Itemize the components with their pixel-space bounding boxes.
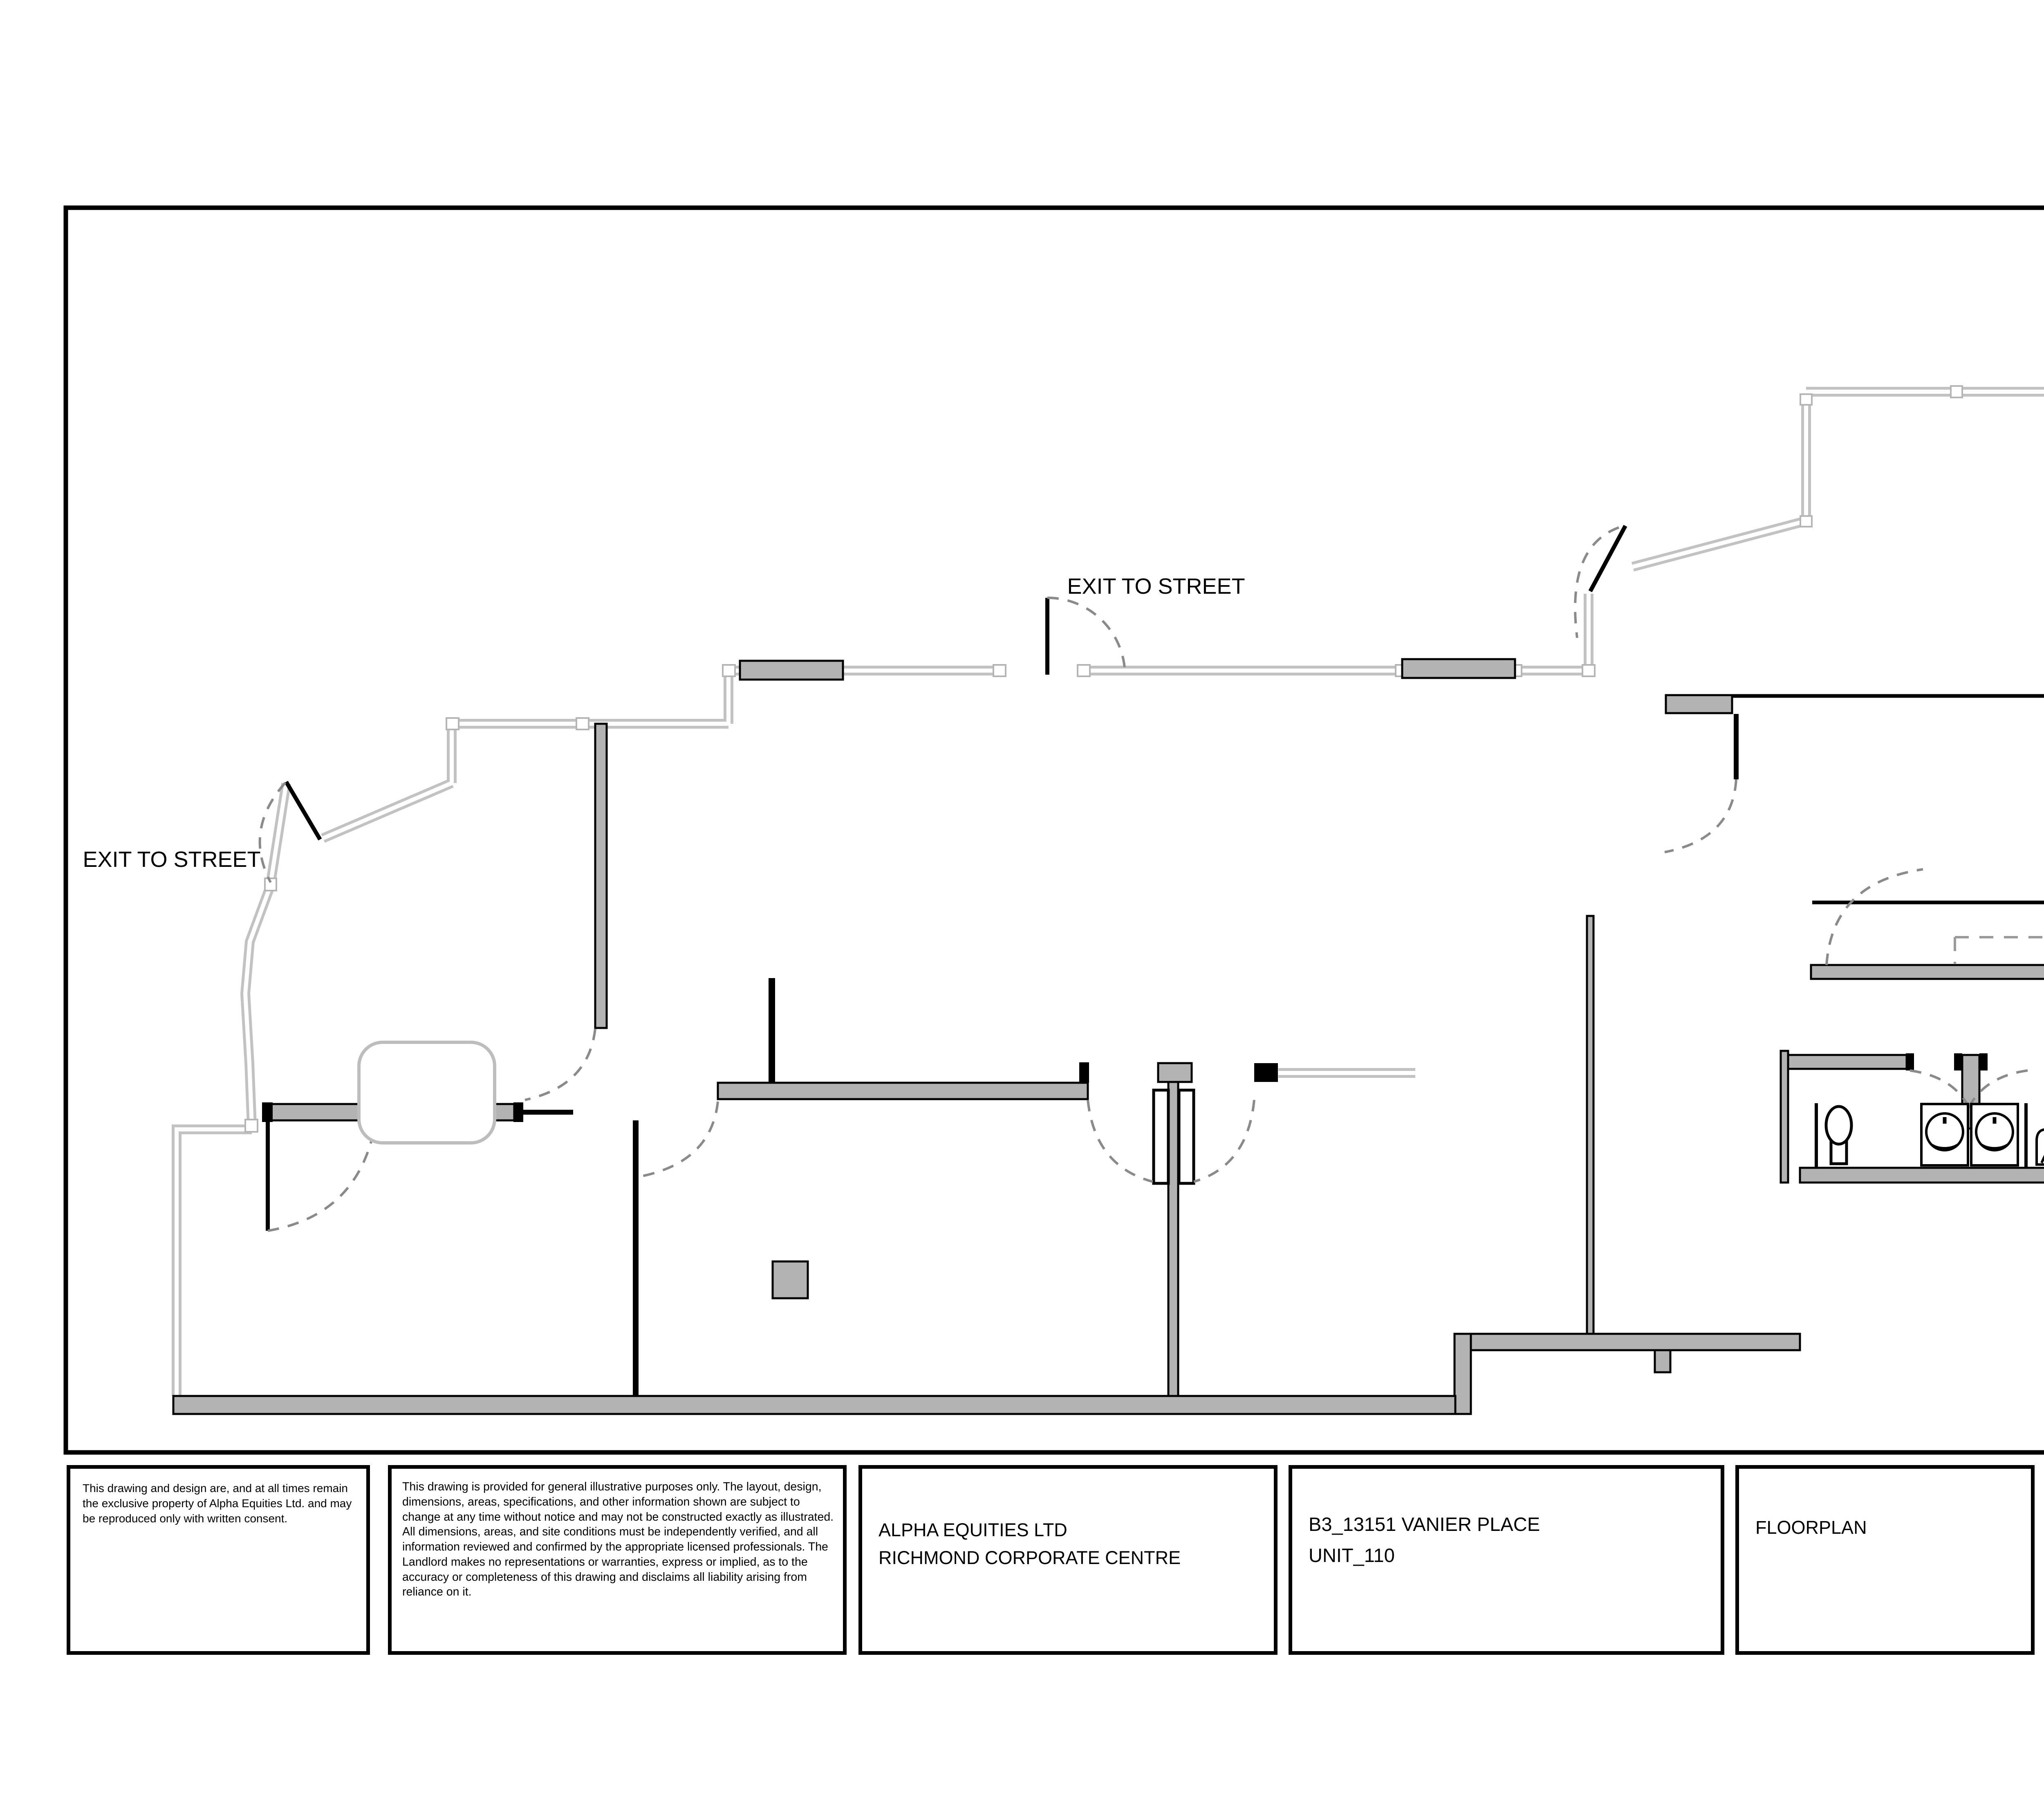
door-arc: [1194, 1100, 1254, 1182]
conference-table: [359, 1042, 495, 1143]
chase-cap: [1158, 1063, 1192, 1082]
toilet-icon: [1826, 1106, 1851, 1164]
title-block-sheet-cell: FLOORPLAN: [1735, 1465, 2035, 1655]
title-block-disclaimer-cell: This drawing is provided for general ill…: [388, 1465, 847, 1655]
interior-wall-v1: [595, 724, 607, 1028]
lower-right-wall: [1455, 1334, 1800, 1350]
wall-segment: [1402, 659, 1515, 678]
sheet-title-text: FLOORPLAN: [1755, 1517, 2031, 1538]
interior-wall: [1587, 916, 1594, 1334]
window-walls: [177, 386, 2044, 1396]
washroom-partition-left: [1787, 1055, 1907, 1069]
exit-to-street-label-left: EXIT TO STREET: [83, 847, 260, 872]
wall-riser: [1455, 1334, 1471, 1414]
pilaster: [1655, 1350, 1670, 1372]
door-arc: [525, 1029, 595, 1100]
fixtures: [359, 907, 2044, 1165]
room-b-top-wall: [718, 1083, 1088, 1099]
doors: [260, 526, 2044, 1231]
door-swing-arcs: [260, 527, 2028, 1231]
title-block-company-cell: ALPHA EQUITIES LTD RICHMOND CORPORATE CE…: [858, 1465, 1277, 1655]
title-block-project-cell: B3_13151 VANIER PLACE UNIT_110: [1289, 1465, 1724, 1655]
chase-wall: [1168, 1081, 1178, 1396]
title-block-copyright-cell: This drawing and design are, and at all …: [67, 1465, 370, 1655]
hidden-line: [1955, 937, 2044, 964]
corridor-wall: [1811, 965, 2044, 979]
floorplan-sheet: EXIT TO STREET EXIT TO STREET This drawi…: [0, 0, 2044, 1818]
room-divider: [633, 1120, 639, 1397]
thin-walls: [262, 696, 2044, 1397]
copyright-text: This drawing and design are, and at all …: [83, 1481, 356, 1526]
sink-icon: [1971, 1104, 2018, 1165]
door-leaf: [286, 782, 320, 839]
bottom-wall: [173, 1396, 1455, 1414]
door-arc: [1047, 598, 1125, 675]
washroom-bottom-wall: [1800, 1168, 2044, 1183]
window-mullion-posts: [245, 386, 2044, 1132]
sink-icon: [1921, 1104, 1968, 1165]
drawing-frame-border: [66, 208, 2044, 1452]
urinal-icon: [2037, 1129, 2044, 1165]
wall-segment: [1666, 695, 1732, 713]
wall-stub: [769, 978, 775, 1084]
exit-to-street-label-top: EXIT TO STREET: [1067, 574, 1245, 599]
washroom-left-wall: [1781, 1051, 1788, 1183]
door-arc: [268, 1124, 375, 1231]
door-leaf: [1590, 526, 1625, 591]
column: [773, 1261, 808, 1298]
door-arc: [643, 1102, 718, 1176]
hidden-lines: [1955, 937, 2044, 964]
door-arc: [1827, 869, 1923, 965]
wall-segment: [740, 661, 843, 680]
door-arc: [1665, 779, 1736, 852]
project-address-text: B3_13151 VANIER PLACE UNIT_110: [1309, 1509, 1721, 1571]
company-name-text: ALPHA EQUITIES LTD RICHMOND CORPORATE CE…: [879, 1516, 1274, 1571]
door-arc: [1088, 1100, 1153, 1182]
gray-walls: [173, 343, 2044, 1414]
disclaimer-text: This drawing is provided for general ill…: [402, 1479, 834, 1600]
